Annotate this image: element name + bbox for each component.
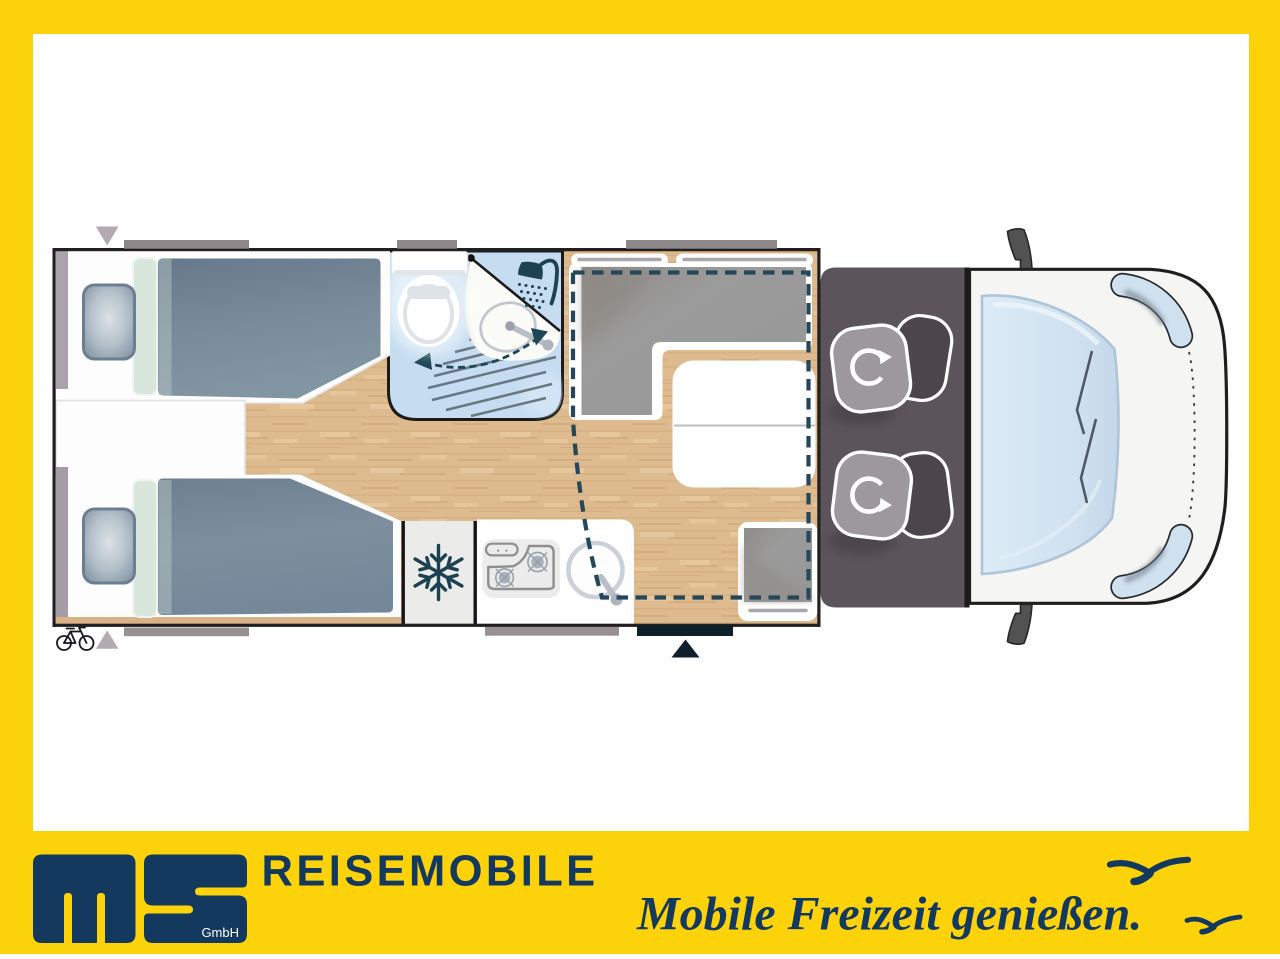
svg-text:GmbH: GmbH [201,925,239,940]
svg-text:REISEMOBILE: REISEMOBILE [262,848,599,896]
svg-text:Mobile Freizeit genießen.: Mobile Freizeit genießen. [636,888,1142,941]
